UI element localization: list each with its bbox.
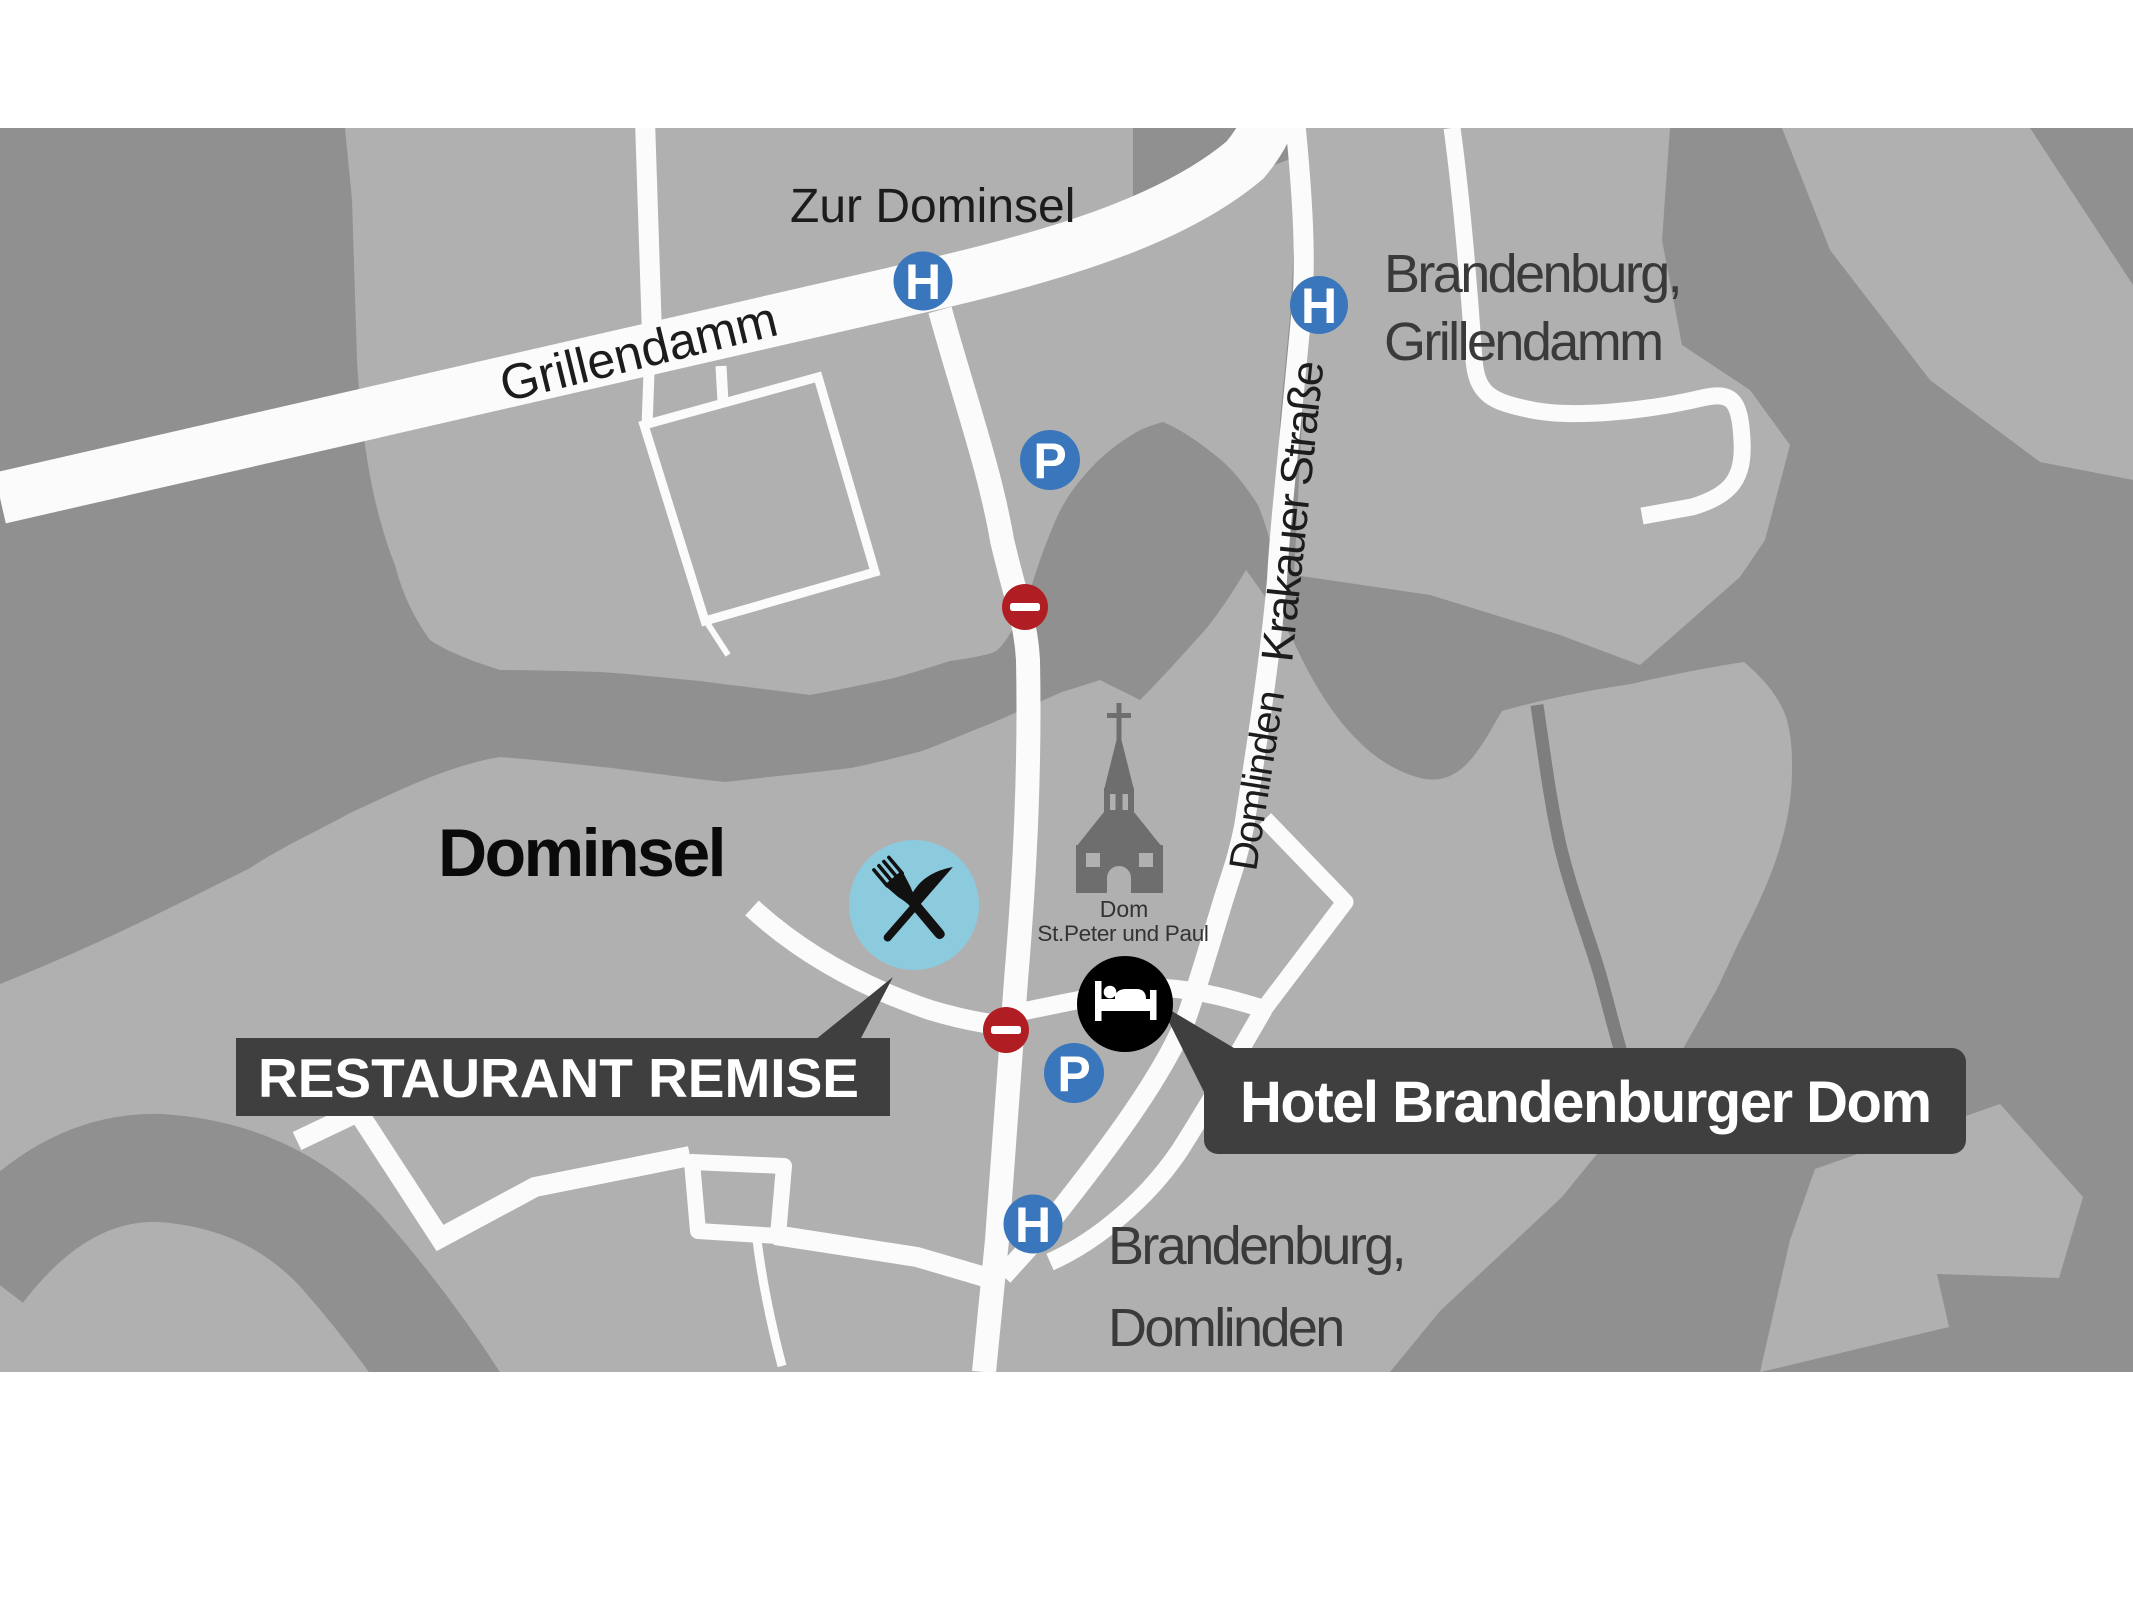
svg-text:Brandenburg,: Brandenburg, xyxy=(1108,1216,1404,1276)
svg-text:Dom: Dom xyxy=(1100,896,1149,922)
svg-text:H: H xyxy=(1301,278,1337,334)
svg-text:Zur Dominsel: Zur Dominsel xyxy=(790,180,1075,233)
svg-text:Grillendamm: Grillendamm xyxy=(1384,312,1661,372)
svg-text:St.Peter und Paul: St.Peter und Paul xyxy=(1037,921,1208,946)
svg-text:H: H xyxy=(905,254,941,310)
svg-text:H: H xyxy=(1015,1197,1051,1253)
svg-text:P: P xyxy=(1057,1046,1090,1102)
svg-text:Hotel Brandenburger Dom: Hotel Brandenburger Dom xyxy=(1240,1070,1931,1135)
svg-text:RESTAURANT REMISE: RESTAURANT REMISE xyxy=(258,1047,859,1109)
svg-text:P: P xyxy=(1033,433,1066,489)
svg-text:Brandenburg,: Brandenburg, xyxy=(1384,244,1680,304)
svg-text:Dominsel: Dominsel xyxy=(438,815,724,891)
svg-text:Domlinden: Domlinden xyxy=(1108,1298,1343,1358)
